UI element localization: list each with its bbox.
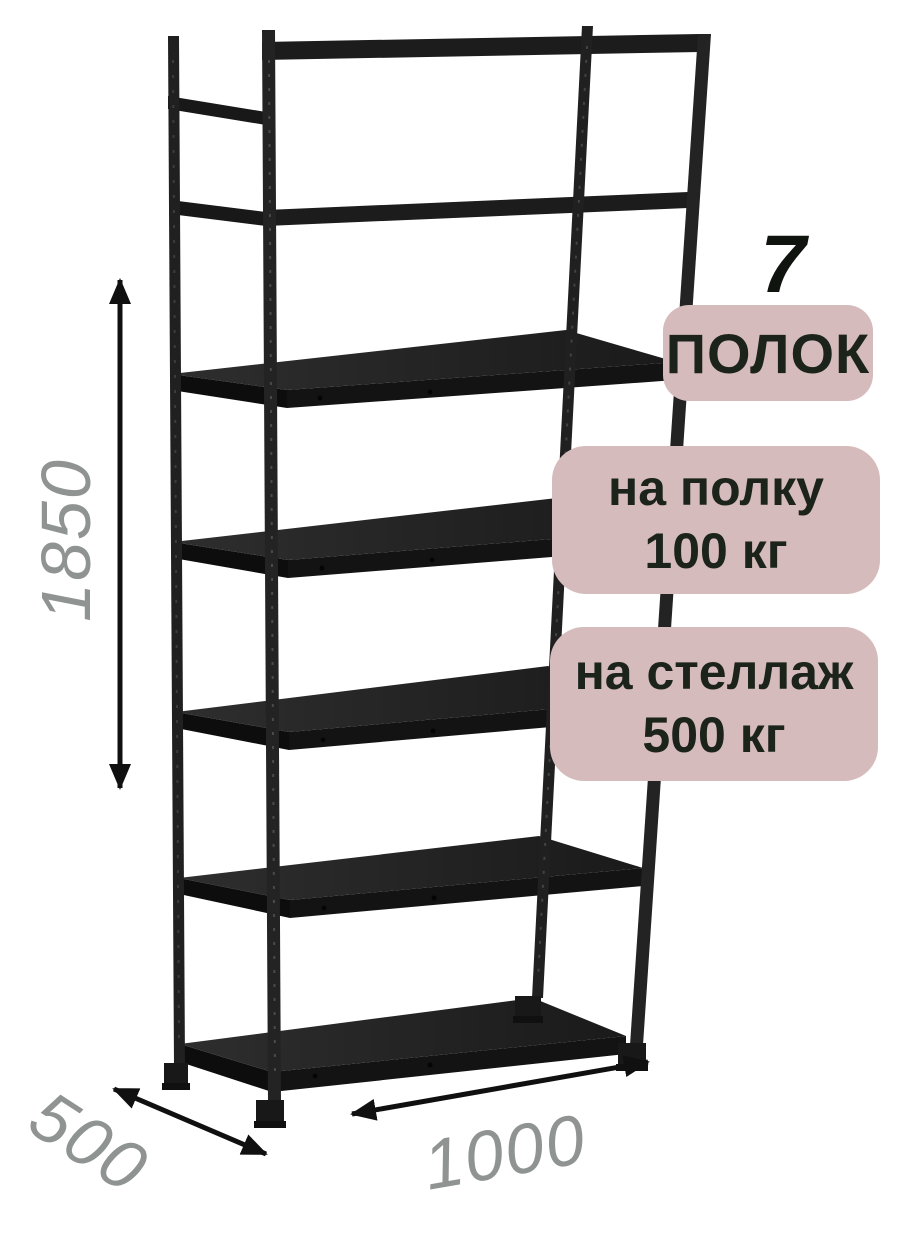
foot-base (513, 1016, 543, 1023)
bolt (318, 396, 323, 401)
bolt (431, 729, 436, 734)
foot (515, 996, 541, 1016)
bolt (320, 566, 325, 571)
shelf-rail (262, 34, 700, 60)
shelf-slab-3 (171, 330, 676, 408)
bolt (428, 1063, 433, 1068)
shelf-frame-top (168, 34, 700, 125)
bolt (430, 558, 435, 563)
per-shelf-load-text: на полку (608, 457, 824, 520)
shelf-side-rail (168, 96, 266, 125)
per-rack-load-text: на стеллаж (575, 641, 854, 704)
foot (164, 1063, 188, 1083)
shelf-count-number: 7 (728, 222, 838, 308)
shelf-rail (266, 192, 688, 226)
per-shelf-load-badge: на полку 100 кг (552, 446, 880, 594)
shelf-frame-2 (170, 192, 688, 226)
bolt (313, 1074, 318, 1079)
shelf-slab-6 (179, 836, 643, 918)
rack-illustration (0, 0, 900, 1200)
bolt (428, 390, 433, 395)
bolt (321, 738, 326, 743)
foot-base (254, 1121, 286, 1128)
per-shelf-load-value: 100 кг (644, 520, 787, 583)
height-dimension-label: 1850 (26, 390, 106, 690)
product-image: 1850 500 1000 7 ПОЛОК на полку 100 кг на… (0, 0, 900, 1200)
foot-base (162, 1083, 190, 1090)
shelf-count-label: ПОЛОК (666, 321, 870, 386)
bolt (432, 896, 437, 901)
per-rack-load-badge: на стеллаж 500 кг (550, 627, 878, 781)
per-rack-load-value: 500 кг (642, 704, 785, 767)
shelf-side-rail (170, 200, 266, 226)
shelf-count-badge: ПОЛОК (663, 305, 873, 401)
foot (256, 1100, 284, 1121)
bolt (322, 906, 327, 911)
